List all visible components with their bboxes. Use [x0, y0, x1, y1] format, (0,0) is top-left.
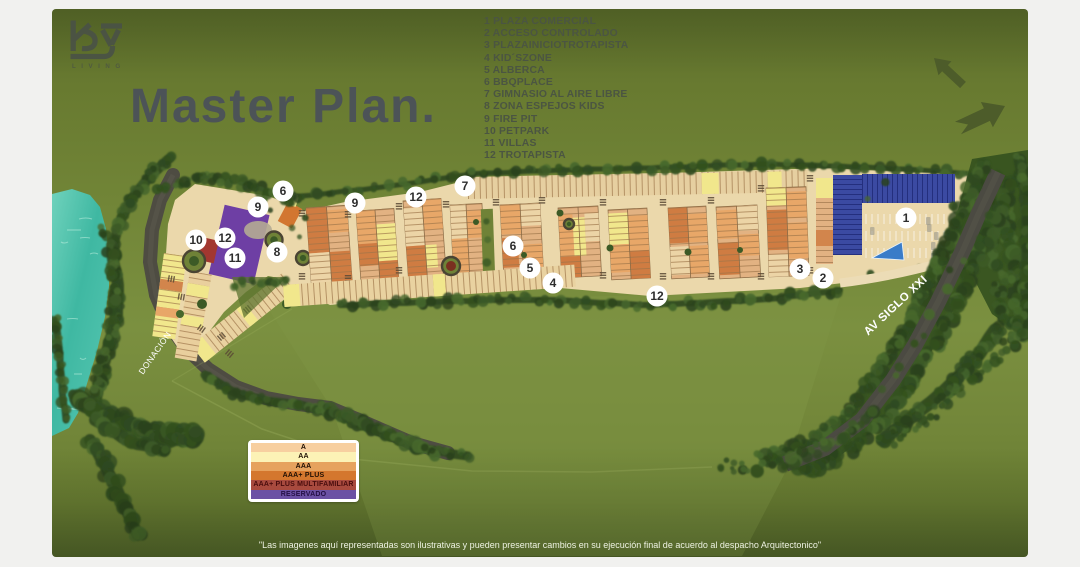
svg-text:12: 12: [218, 231, 232, 245]
svg-text:11: 11: [229, 251, 242, 265]
svg-text:4: 4: [550, 276, 557, 290]
svg-text:5: 5: [527, 261, 534, 275]
svg-text:6: 6: [510, 239, 517, 253]
svg-text:12: 12: [650, 289, 664, 303]
svg-text:12: 12: [409, 190, 423, 204]
svg-text:9: 9: [255, 200, 262, 214]
svg-text:2: 2: [820, 271, 827, 285]
svg-text:1: 1: [903, 211, 910, 225]
svg-text:LIVING: LIVING: [72, 63, 126, 70]
svg-text:7: 7: [462, 179, 469, 193]
svg-text:3: 3: [797, 262, 804, 276]
svg-text:8: 8: [274, 245, 281, 259]
svg-text:10: 10: [189, 233, 203, 247]
svg-text:9: 9: [352, 196, 359, 210]
svg-text:6: 6: [280, 184, 287, 198]
